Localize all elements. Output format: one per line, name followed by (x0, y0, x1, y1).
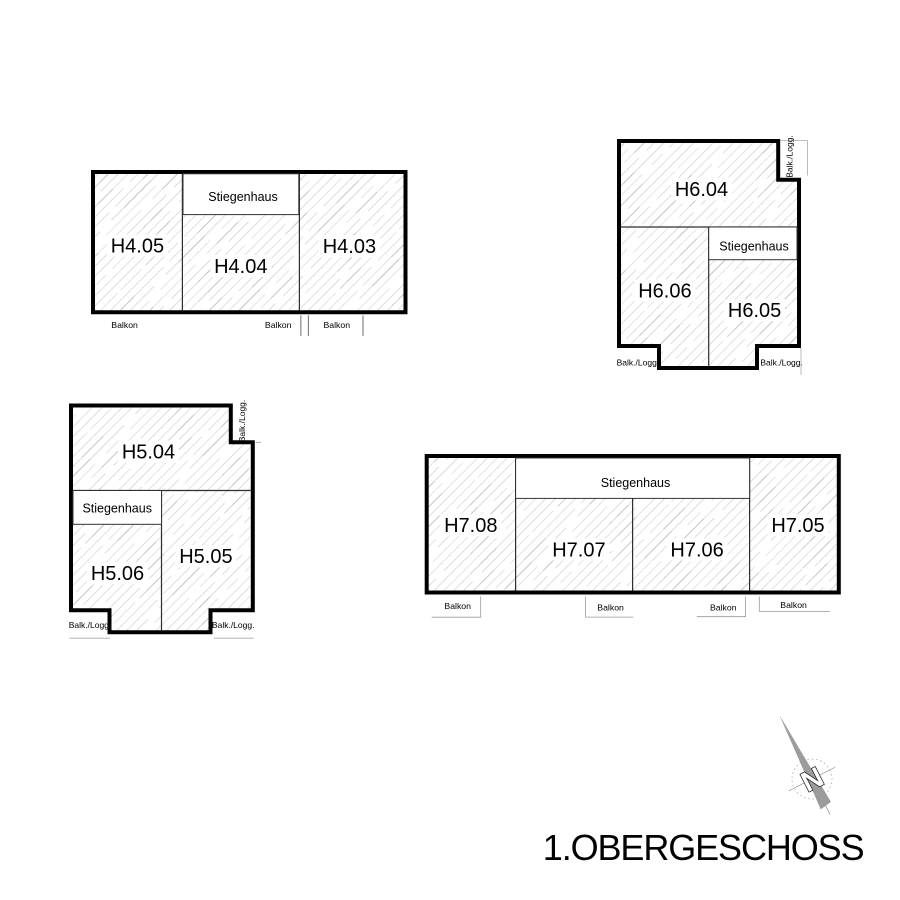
svg-text:H7.08: H7.08 (444, 515, 497, 537)
svg-text:H4.05: H4.05 (111, 235, 164, 257)
svg-text:H7.05: H7.05 (771, 515, 824, 537)
svg-text:Balkon: Balkon (265, 320, 292, 330)
svg-text:Balkon: Balkon (780, 600, 807, 610)
svg-text:H5.04: H5.04 (122, 441, 175, 463)
svg-text:Balk./Logg.: Balk./Logg. (760, 358, 803, 368)
svg-text:Balkon: Balkon (710, 602, 737, 612)
svg-text:Balk./Logg.: Balk./Logg. (212, 620, 255, 630)
svg-text:Balkon: Balkon (111, 320, 138, 330)
svg-text:Balk./Logg.: Balk./Logg. (69, 620, 112, 630)
svg-text:1.OBERGESCHOSS: 1.OBERGESCHOSS (543, 827, 864, 868)
svg-text:Balkon: Balkon (444, 601, 471, 611)
svg-text:Stiegenhaus: Stiegenhaus (719, 239, 789, 253)
svg-text:Balk./Logg.: Balk./Logg. (785, 135, 795, 178)
svg-text:H5.05: H5.05 (179, 546, 232, 568)
svg-text:H7.06: H7.06 (670, 539, 723, 561)
svg-text:H4.03: H4.03 (323, 236, 376, 258)
svg-text:H6.04: H6.04 (675, 179, 728, 201)
svg-text:Balkon: Balkon (324, 320, 351, 330)
svg-text:H6.05: H6.05 (728, 300, 781, 322)
svg-text:H6.06: H6.06 (638, 280, 691, 302)
svg-text:H4.04: H4.04 (214, 256, 267, 278)
svg-text:H5.06: H5.06 (91, 563, 144, 585)
svg-text:Balk./Logg.: Balk./Logg. (617, 358, 660, 368)
svg-text:Stiegenhaus: Stiegenhaus (82, 502, 152, 516)
svg-text:Stiegenhaus: Stiegenhaus (208, 190, 278, 204)
svg-text:H7.07: H7.07 (552, 539, 605, 561)
svg-text:Stiegenhaus: Stiegenhaus (601, 476, 671, 490)
svg-text:Balk./Logg.: Balk./Logg. (237, 400, 247, 443)
svg-text:Balkon: Balkon (597, 602, 624, 612)
